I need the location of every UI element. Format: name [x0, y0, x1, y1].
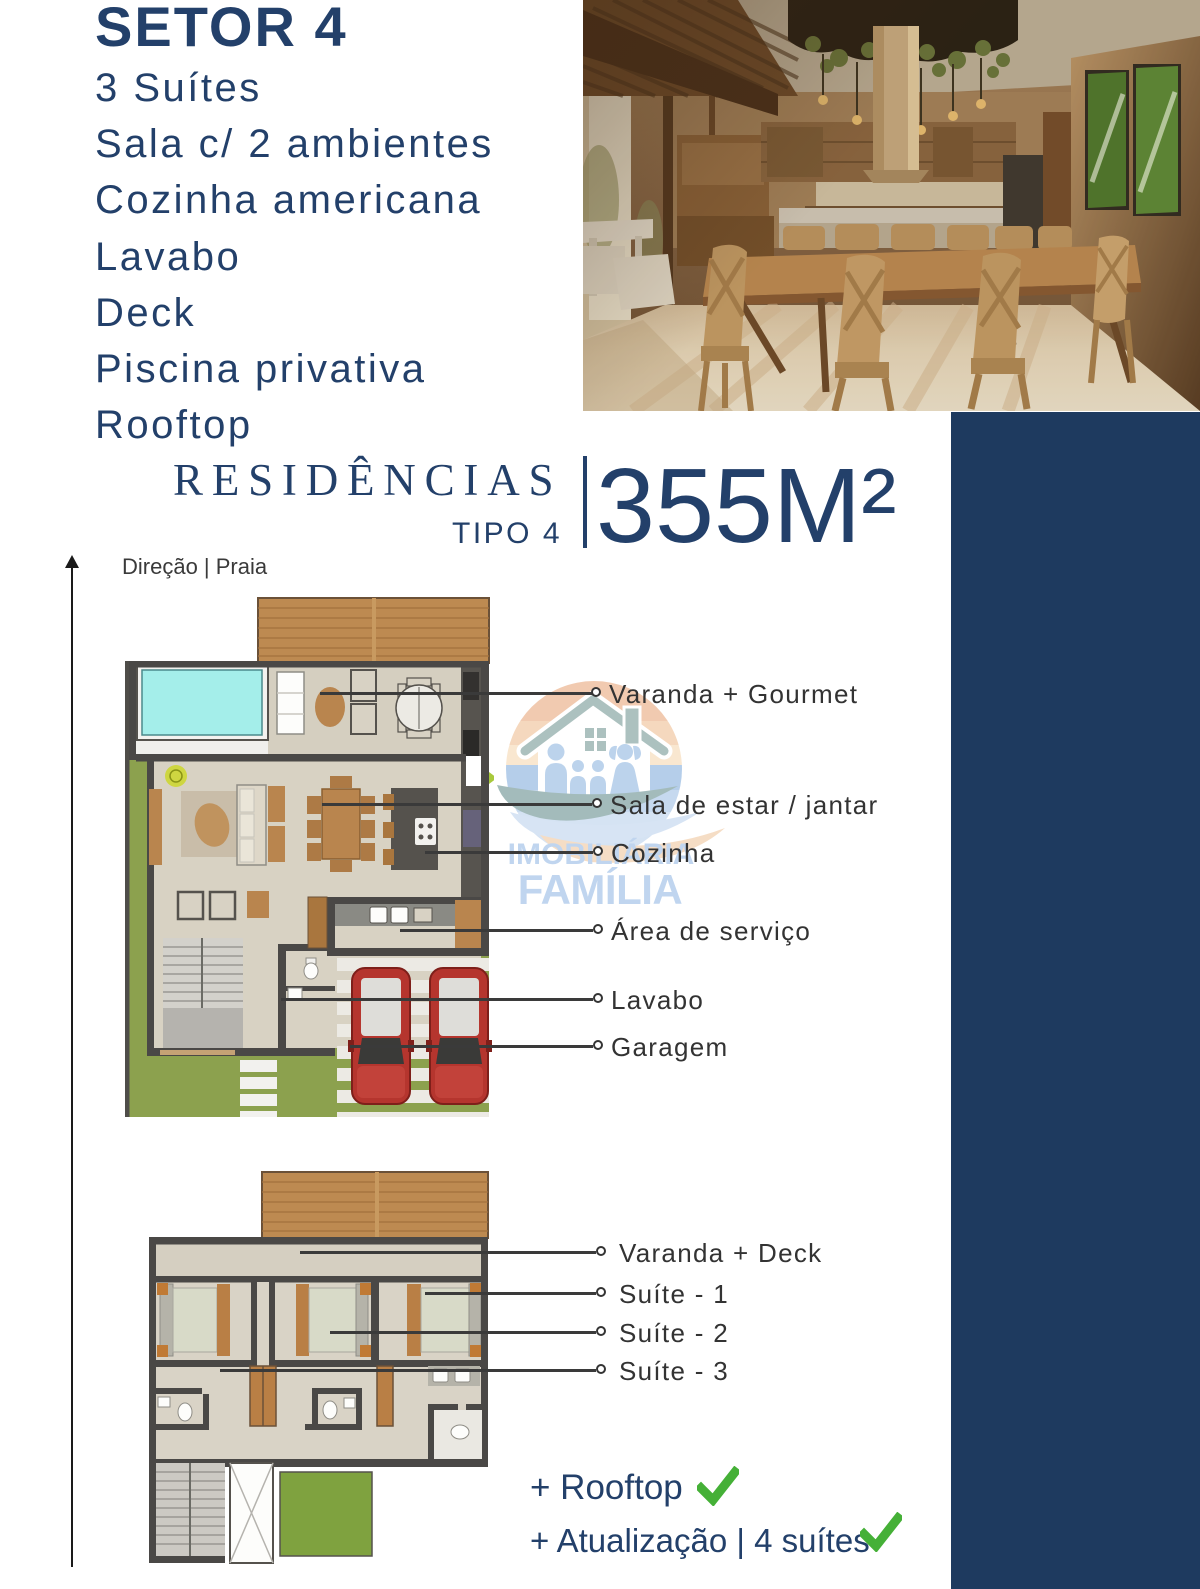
svg-text:FAMÍLIA: FAMÍLIA — [518, 866, 683, 913]
